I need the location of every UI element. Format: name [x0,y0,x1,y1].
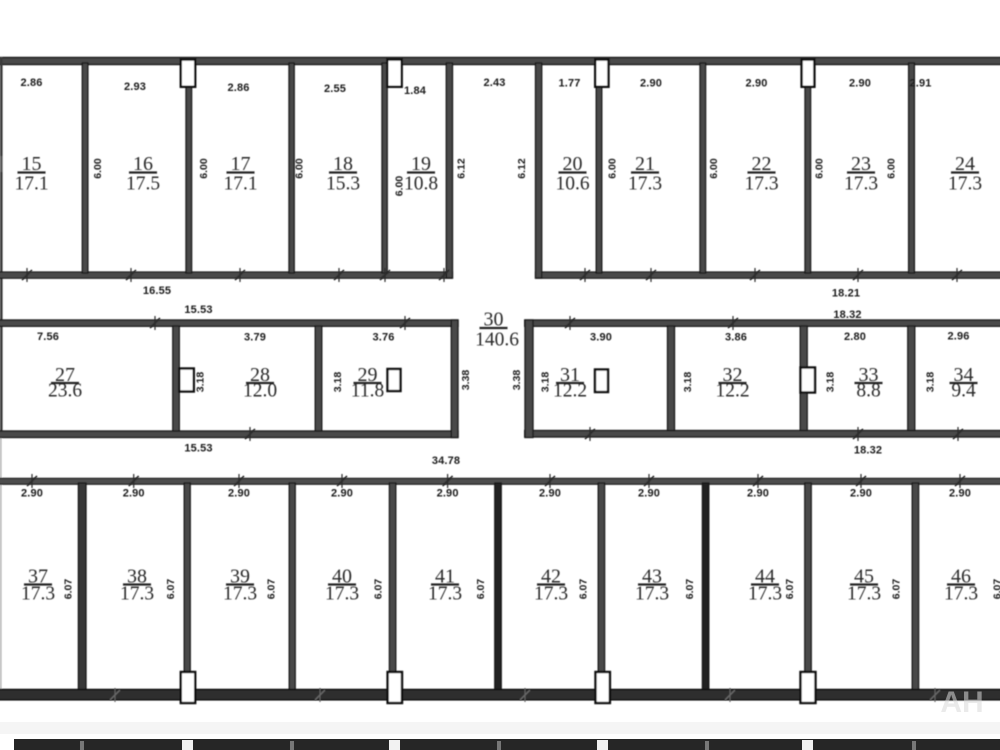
svg-text:17.3: 17.3 [223,584,257,605]
svg-text:2.90: 2.90 [745,78,767,90]
svg-text:17.3: 17.3 [847,584,881,605]
svg-text:8.8: 8.8 [856,381,880,402]
svg-text:2.91: 2.91 [909,78,931,90]
svg-text:6.07: 6.07 [684,579,696,600]
svg-text:15.53: 15.53 [184,304,212,316]
svg-text:17.5: 17.5 [126,174,160,195]
svg-text:17.3: 17.3 [744,174,778,195]
svg-text:2.43: 2.43 [483,77,505,89]
svg-text:2.55: 2.55 [324,83,346,95]
svg-text:3.38: 3.38 [511,370,523,391]
svg-text:2.90: 2.90 [21,488,43,500]
svg-text:6.00: 6.00 [394,176,406,197]
svg-text:16.55: 16.55 [143,285,171,297]
svg-text:3.18: 3.18 [682,372,694,393]
svg-text:10.6: 10.6 [555,174,589,195]
svg-text:2.90: 2.90 [638,488,660,500]
svg-text:23.6: 23.6 [48,381,82,402]
svg-text:2.90: 2.90 [850,488,872,500]
svg-text:2.90: 2.90 [331,488,353,500]
svg-text:15.3: 15.3 [326,174,360,195]
svg-text:15.53: 15.53 [184,443,212,455]
svg-text:2.90: 2.90 [123,488,145,500]
svg-text:3.18: 3.18 [195,372,207,393]
svg-text:6.00: 6.00 [708,158,720,179]
svg-text:3.38: 3.38 [460,370,472,391]
svg-text:17.1: 17.1 [14,174,48,195]
svg-text:3.79: 3.79 [244,332,266,344]
svg-text:1.84: 1.84 [404,85,427,97]
svg-text:18.32: 18.32 [854,445,882,457]
svg-text:6.07: 6.07 [165,579,177,600]
svg-text:3.18: 3.18 [825,372,837,393]
svg-text:17.3: 17.3 [635,584,669,605]
svg-text:17.3: 17.3 [534,584,568,605]
svg-text:2.90: 2.90 [228,488,250,500]
svg-text:6.00: 6.00 [607,158,619,179]
svg-text:6.07: 6.07 [891,579,903,600]
svg-text:3.86: 3.86 [725,332,747,344]
svg-text:3.18: 3.18 [332,372,344,393]
svg-text:1.77: 1.77 [558,78,580,90]
svg-text:6.07: 6.07 [475,579,487,600]
svg-text:17.3: 17.3 [948,174,982,195]
svg-text:2.90: 2.90 [949,488,971,500]
svg-text:140.6: 140.6 [475,330,519,351]
svg-text:6.12: 6.12 [456,158,468,179]
svg-text:12.2: 12.2 [715,381,749,402]
svg-text:2.90: 2.90 [437,488,459,500]
svg-text:10.8: 10.8 [404,174,438,195]
svg-text:6.07: 6.07 [266,579,278,600]
svg-text:3.76: 3.76 [372,332,394,344]
svg-text:2.86: 2.86 [227,82,249,94]
svg-text:6.00: 6.00 [814,158,826,179]
svg-text:3.18: 3.18 [540,372,552,393]
svg-text:17.1: 17.1 [223,174,257,195]
svg-text:17.3: 17.3 [120,584,154,605]
svg-text:18.21: 18.21 [832,288,860,300]
svg-text:6.07: 6.07 [373,579,385,600]
svg-text:12.0: 12.0 [243,381,277,402]
svg-text:2.90: 2.90 [747,488,769,500]
svg-text:2.93: 2.93 [124,81,146,93]
svg-text:17.3: 17.3 [428,584,462,605]
svg-text:3.18: 3.18 [925,372,937,393]
svg-text:6.07: 6.07 [992,579,1000,600]
svg-text:2.96: 2.96 [947,331,969,343]
svg-text:18.32: 18.32 [833,309,861,321]
svg-text:17.3: 17.3 [21,584,55,605]
svg-text:2.90: 2.90 [539,488,561,500]
svg-text:6.00: 6.00 [198,158,210,179]
svg-text:АН: АН [940,686,983,719]
svg-text:17.3: 17.3 [628,174,662,195]
svg-text:3.90: 3.90 [590,332,612,344]
svg-text:2.80: 2.80 [844,331,866,343]
svg-text:6.07: 6.07 [63,579,75,600]
svg-text:12.2: 12.2 [553,381,587,402]
svg-text:7.56: 7.56 [37,331,59,343]
svg-text:6.00: 6.00 [294,158,306,179]
svg-text:2.90: 2.90 [640,78,662,90]
svg-text:17.3: 17.3 [748,584,782,605]
svg-text:6.00: 6.00 [886,158,898,179]
svg-text:6.12: 6.12 [516,158,528,179]
svg-text:34.78: 34.78 [432,455,460,467]
svg-text:6.07: 6.07 [784,579,796,600]
svg-text:2.86: 2.86 [20,77,42,89]
svg-text:17.3: 17.3 [325,584,359,605]
svg-text:11.8: 11.8 [351,381,384,402]
svg-text:6.00: 6.00 [92,158,104,179]
svg-text:2.90: 2.90 [849,78,871,90]
svg-text:6.07: 6.07 [578,579,590,600]
svg-text:17.3: 17.3 [944,584,978,605]
svg-text:9.4: 9.4 [951,381,976,402]
svg-text:17.3: 17.3 [844,174,878,195]
